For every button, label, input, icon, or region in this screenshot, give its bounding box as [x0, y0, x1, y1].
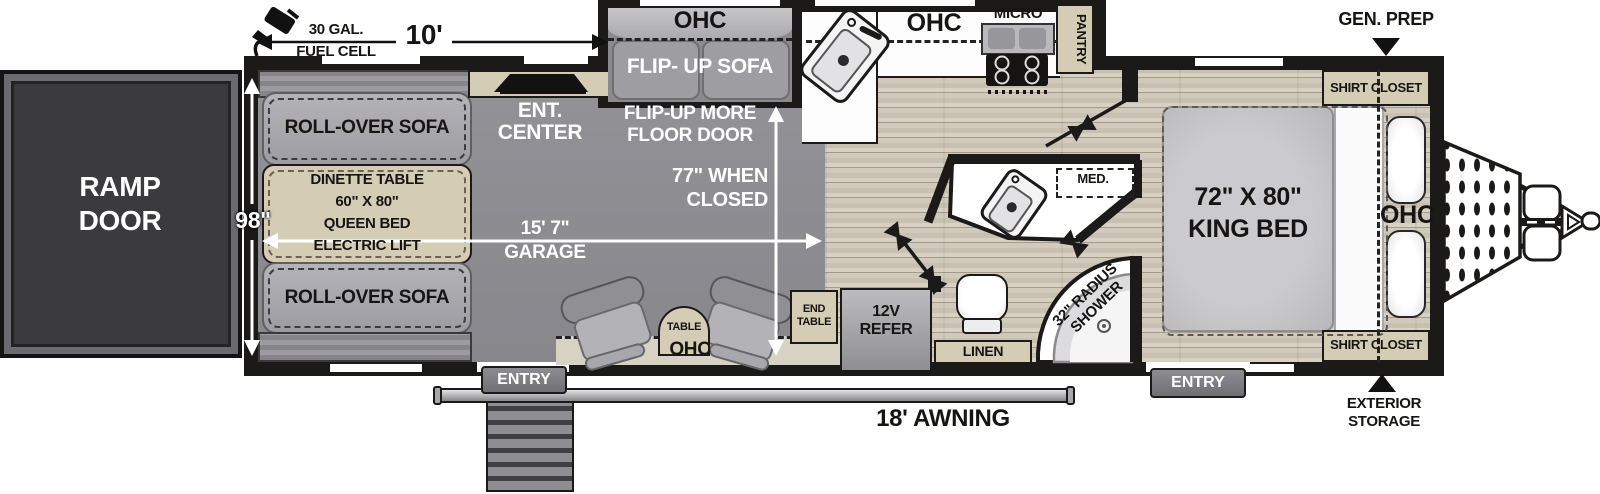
hitch-coupler [1562, 206, 1588, 238]
bedroom-door-wall-stub [1122, 70, 1138, 102]
awning-cap-right [1066, 386, 1075, 405]
refer-label-1: 12V [840, 304, 932, 321]
entertainment-center-shelf [468, 70, 610, 98]
garage-ohc-label: OHC [650, 340, 730, 360]
micro-label: MICRO [984, 6, 1052, 22]
garage-table-label: TABLE [658, 322, 710, 334]
toilet-base [962, 318, 1002, 334]
dinette-label-1: DINETTE TABLE [262, 172, 472, 188]
med-label: MED. [1058, 172, 1128, 186]
kitchen-ohc-label: OHC [898, 10, 970, 36]
rock-guard [1444, 142, 1520, 301]
shirt-closet-front-label: SHIRT CLOSET [1322, 338, 1430, 352]
window-bedroom-top [1195, 58, 1283, 66]
entry-garage-badge: ENTRY [481, 366, 567, 394]
entry-steps [486, 400, 574, 492]
vanity-top-wall [948, 154, 1140, 166]
rv-floorplan: RAMP DOOR ROLL-OVER SOFA DINETTE TABLE 6… [0, 0, 1600, 494]
ent-center-label-2: CENTER [470, 122, 610, 144]
gen-prep-label: GEN. PREP [1330, 10, 1442, 29]
end-table-label-1: END [790, 304, 838, 316]
window-bed-bottom [1250, 364, 1294, 372]
dinette-label-2: 60" X 80" [262, 194, 472, 210]
window-garage-bottom [330, 364, 422, 372]
window-garage-top2 [524, 56, 588, 64]
ent-center-label-1: ENT. [470, 100, 610, 122]
fuel-label-2: FUEL CELL [288, 44, 384, 60]
body-width-label: 98" [230, 208, 276, 232]
bed-pillow-bottom [1386, 230, 1426, 318]
flip-up-note-1: FLIP-UP MORE [592, 104, 788, 124]
window-slideout-top [640, 0, 780, 6]
rollover-sofa-top-label: ROLL-OVER SOFA [262, 118, 472, 138]
closed-height-label-1: 77" WHEN [620, 166, 768, 187]
flip-up-sofa-label: FLIP- UP SOFA [608, 56, 792, 78]
garage-length-label-2: GARAGE [485, 243, 605, 263]
garage-length-label-1: 15' 7" [485, 219, 605, 239]
linen-label: LINEN [934, 344, 1032, 359]
closed-height-label-2: CLOSED [620, 190, 768, 211]
awning-cap-left [433, 386, 442, 405]
window-kitchen-top [815, 0, 975, 6]
dinette-label-4: ELECTRIC LIFT [262, 238, 472, 254]
exterior-storage-label-1: EXTERIOR [1320, 396, 1448, 412]
rollover-sofa-bottom-back [258, 332, 472, 362]
toilet [956, 274, 1008, 322]
flip-up-note-2: FLOOR DOOR [592, 126, 788, 146]
hitch-assembly [1444, 142, 1600, 301]
front-length-label: 10' [398, 20, 450, 49]
rollover-sofa-bottom-label: ROLL-OVER SOFA [262, 288, 472, 308]
entry-main-badge: ENTRY [1150, 368, 1246, 398]
refer-label-2: REFER [840, 322, 932, 339]
bed-ohc-label: OHC [1380, 202, 1432, 228]
tongue-jack [1582, 213, 1600, 229]
end-table-label-2: TABLE [790, 317, 838, 329]
propane-tank-bottom [1524, 226, 1560, 260]
ramp-door-label-2: DOOR [2, 206, 238, 235]
shirt-closet-rear-label: SHIRT CLOSET [1322, 81, 1430, 95]
ramp-door-label-1: RAMP [2, 172, 238, 201]
bed-pillow-top [1386, 116, 1426, 204]
king-bed-label-2: KING BED [1168, 216, 1328, 242]
dinette-label-3: QUEEN BED [262, 216, 472, 232]
exterior-storage-arrow [1368, 374, 1396, 392]
flip-up-sofa-dash [608, 38, 792, 41]
king-bed-label-1: 72" X 80" [1168, 184, 1328, 210]
awning-label: 18' AWNING [858, 406, 1028, 431]
exterior-storage-label-2: STORAGE [1320, 414, 1448, 430]
propane-tank-top [1524, 186, 1560, 220]
fuel-label-1: 30 GAL. [296, 22, 376, 38]
gen-prep-arrow [1372, 38, 1400, 56]
flip-up-sofa-ohc-label: OHC [648, 8, 752, 33]
pantry-label: PANTRY [1062, 8, 1088, 70]
